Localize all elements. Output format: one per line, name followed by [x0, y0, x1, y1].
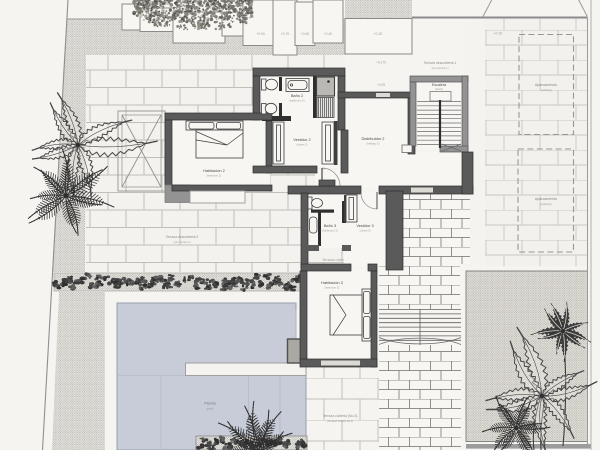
svg-text:(bathroom 3): (bathroom 3) — [322, 229, 337, 233]
svg-text:Vestidor 2: Vestidor 2 — [293, 137, 310, 142]
svg-text:+0.05: +0.05 — [377, 83, 385, 87]
svg-text:Terraza cubierta (No.3): Terraza cubierta (No.3) — [323, 414, 358, 418]
svg-text:Baño 2: Baño 2 — [291, 93, 303, 98]
svg-text:(bedroom 3): (bedroom 3) — [325, 286, 340, 290]
svg-text:(hallway 2): (hallway 2) — [367, 142, 380, 146]
svg-text:(pool): (pool) — [207, 407, 214, 411]
svg-text:Habitación 2: Habitación 2 — [203, 168, 225, 173]
svg-text:(covered terrace No.3): (covered terrace No.3) — [327, 419, 353, 423]
svg-text:(parking): (parking) — [540, 202, 551, 206]
svg-text:+0.90: +0.90 — [256, 32, 265, 36]
svg-text:+0.20: +0.20 — [374, 32, 383, 36]
svg-text:(sun terrace 1): (sun terrace 1) — [432, 66, 449, 70]
svg-text:+0.60: +0.60 — [301, 32, 310, 36]
svg-text:(stairs): (stairs) — [435, 87, 443, 91]
svg-text:Aparcamiento: Aparcamiento — [535, 83, 557, 87]
svg-text:Distribuidor 2: Distribuidor 2 — [362, 136, 385, 141]
svg-text:(parking): (parking) — [540, 88, 551, 92]
svg-text:+0.40: +0.40 — [324, 32, 333, 36]
svg-text:Aparcamiento: Aparcamiento — [535, 197, 557, 201]
svg-text:Terraza descubierta 1: Terraza descubierta 1 — [424, 61, 457, 65]
svg-text:Baño 3: Baño 3 — [324, 223, 336, 228]
svg-text:+0.175: +0.175 — [376, 61, 386, 65]
svg-text:(closet 3): (closet 3) — [359, 229, 370, 233]
svg-text:+0.70: +0.70 — [281, 32, 290, 36]
svg-text:(sun terrace 2): (sun terrace 2) — [174, 240, 191, 244]
svg-text:Terraza descubierta 2: Terraza descubierta 2 — [166, 235, 199, 239]
svg-text:Habitación 3: Habitación 3 — [321, 280, 343, 285]
svg-text:(bathroom 2): (bathroom 2) — [289, 99, 304, 103]
svg-text:+0.30: +0.30 — [494, 32, 503, 36]
svg-text:Piscina: Piscina — [204, 402, 216, 406]
svg-text:(closet 2): (closet 2) — [296, 143, 307, 147]
svg-text:Vestidor 3: Vestidor 3 — [356, 223, 373, 228]
svg-text:Escalera: Escalera — [432, 83, 446, 87]
svg-text:(bedroom 2): (bedroom 2) — [207, 174, 222, 178]
